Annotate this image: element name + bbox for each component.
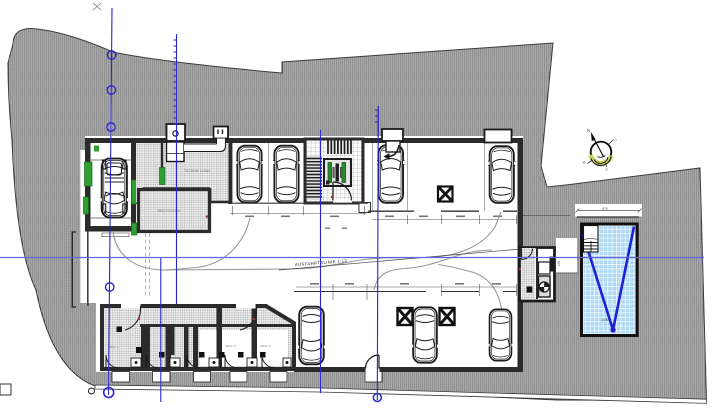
svg-text:N: N [587, 128, 590, 133]
svg-text:575: 575 [602, 207, 608, 211]
svg-text:-0,00: -0,00 [601, 318, 608, 322]
svg-text:TECHNIK 12.5m²: TECHNIK 12.5m² [184, 169, 211, 173]
svg-text:140: 140 [557, 260, 561, 266]
svg-text:ABST. 4: ABST. 4 [225, 344, 236, 348]
svg-text:KELLER 9.8m²: KELLER 9.8m² [158, 209, 181, 213]
svg-text:ABST. 1: ABST. 1 [108, 345, 119, 349]
svg-text:ABST. 5: ABST. 5 [260, 344, 271, 348]
svg-text:O: O [614, 139, 617, 143]
